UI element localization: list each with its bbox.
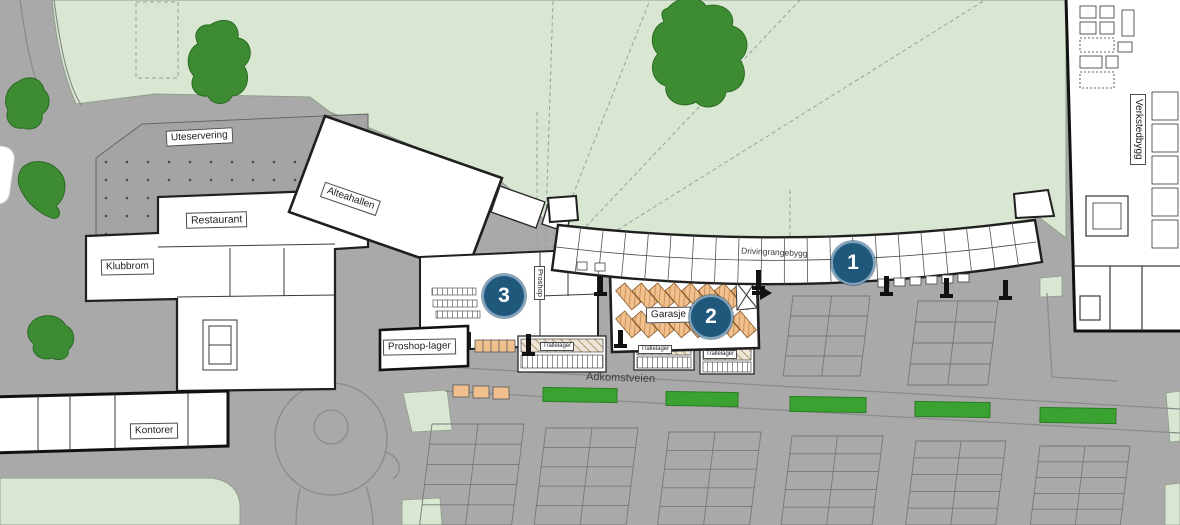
label-klubbrom: Klubbrom	[101, 259, 154, 275]
marker-1-number: 1	[847, 251, 859, 275]
cutoff-label-blob	[0, 144, 16, 205]
verksted-building	[1066, 0, 1180, 331]
hedges	[543, 387, 1116, 423]
label-kontorer: Kontorer	[130, 423, 179, 439]
label-trallelager-2: Trallelager	[638, 345, 672, 354]
kontorer-building	[0, 391, 228, 453]
marker-3-number: 3	[498, 284, 510, 308]
site-plan: Uteservering Restaurant Klubbrom Alteaha…	[0, 0, 1180, 525]
marker-2-number: 2	[705, 305, 717, 329]
label-proshop-lager: Proshop-lager	[383, 338, 456, 355]
label-trallelager-3: Trallelager	[703, 350, 737, 359]
label-verkstedbygg: Verkstedbygg	[1131, 94, 1147, 165]
label-restaurant: Restaurant	[186, 211, 248, 229]
proshop-shelves	[432, 288, 480, 318]
label-trallelager-1: Trallelager	[540, 342, 574, 351]
label-proshop: Proshop	[534, 266, 545, 300]
site-plan-canvas	[0, 0, 1180, 525]
label-garasje: Garasje	[646, 307, 691, 323]
marker-1: 1	[831, 241, 875, 285]
label-adkomstveien: Adkomstveien	[582, 370, 660, 387]
roundabout	[275, 383, 399, 525]
marker-3: 3	[482, 274, 526, 318]
marker-2: 2	[689, 295, 733, 339]
